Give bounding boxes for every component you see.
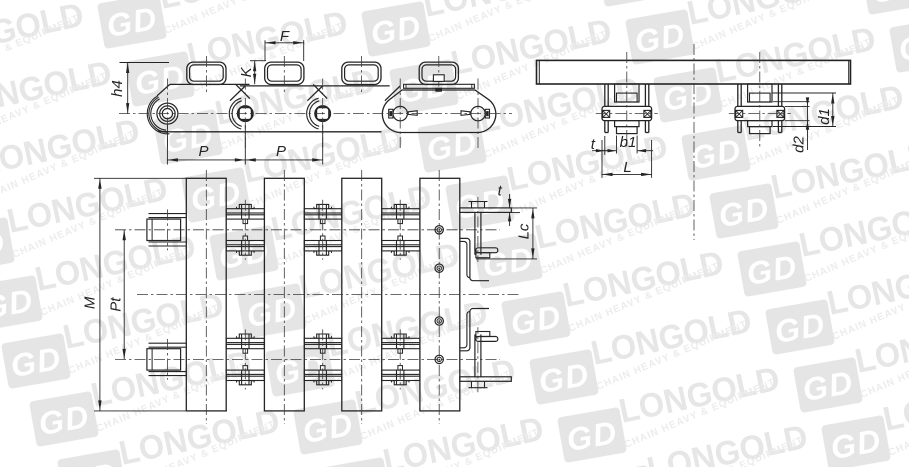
svg-text:b1: b1 — [620, 134, 637, 151]
svg-text:K: K — [238, 66, 255, 77]
svg-text:d2: d2 — [790, 136, 807, 153]
svg-text:Lc: Lc — [516, 223, 533, 239]
svg-text:M: M — [81, 296, 98, 309]
svg-text:Pt: Pt — [107, 297, 124, 312]
svg-text:d1: d1 — [816, 108, 833, 125]
svg-text:P: P — [276, 143, 286, 160]
svg-text:h4: h4 — [109, 80, 126, 97]
svg-text:L: L — [623, 159, 631, 176]
svg-text:F: F — [280, 28, 290, 45]
svg-text:P: P — [198, 143, 208, 160]
